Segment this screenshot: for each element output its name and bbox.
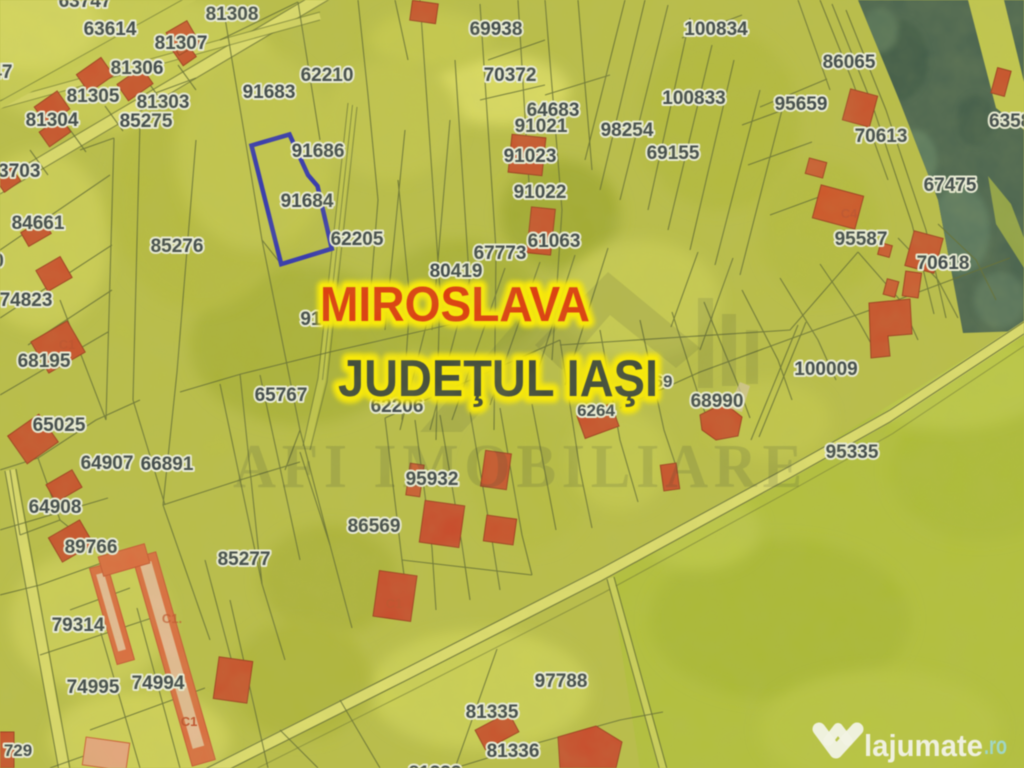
svg-text:.ro: .ro [984, 732, 1007, 760]
svg-text:lajumate: lajumate [864, 728, 983, 763]
